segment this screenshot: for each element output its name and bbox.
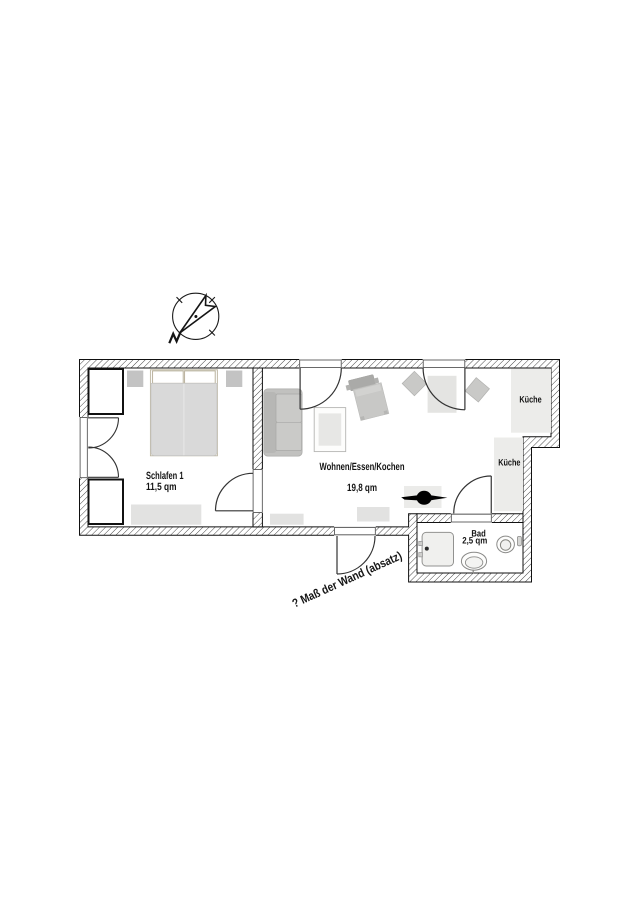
svg-text:Küche: Küche bbox=[498, 458, 520, 468]
svg-text:Schlafen 1: Schlafen 1 bbox=[146, 470, 184, 482]
svg-text:19,8 qm: 19,8 qm bbox=[347, 482, 377, 494]
svg-text:11,5 qm: 11,5 qm bbox=[146, 481, 177, 493]
svg-text:2,5 qm: 2,5 qm bbox=[462, 535, 487, 545]
svg-text:Wohnen/Essen/Kochen: Wohnen/Essen/Kochen bbox=[320, 461, 405, 473]
svg-text:Küche: Küche bbox=[519, 395, 541, 405]
